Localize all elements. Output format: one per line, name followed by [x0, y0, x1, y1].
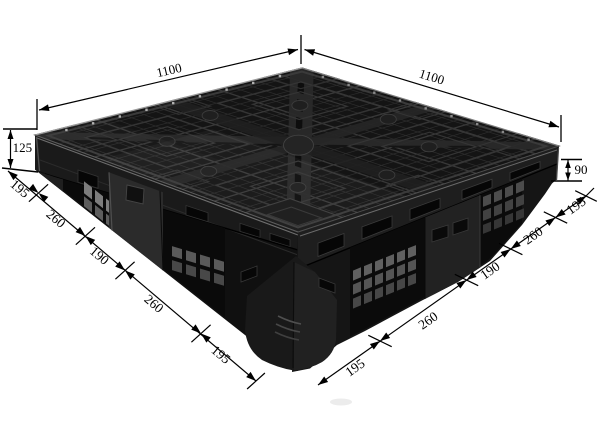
svg-text:90: 90	[575, 162, 588, 177]
svg-text:125: 125	[13, 140, 33, 155]
